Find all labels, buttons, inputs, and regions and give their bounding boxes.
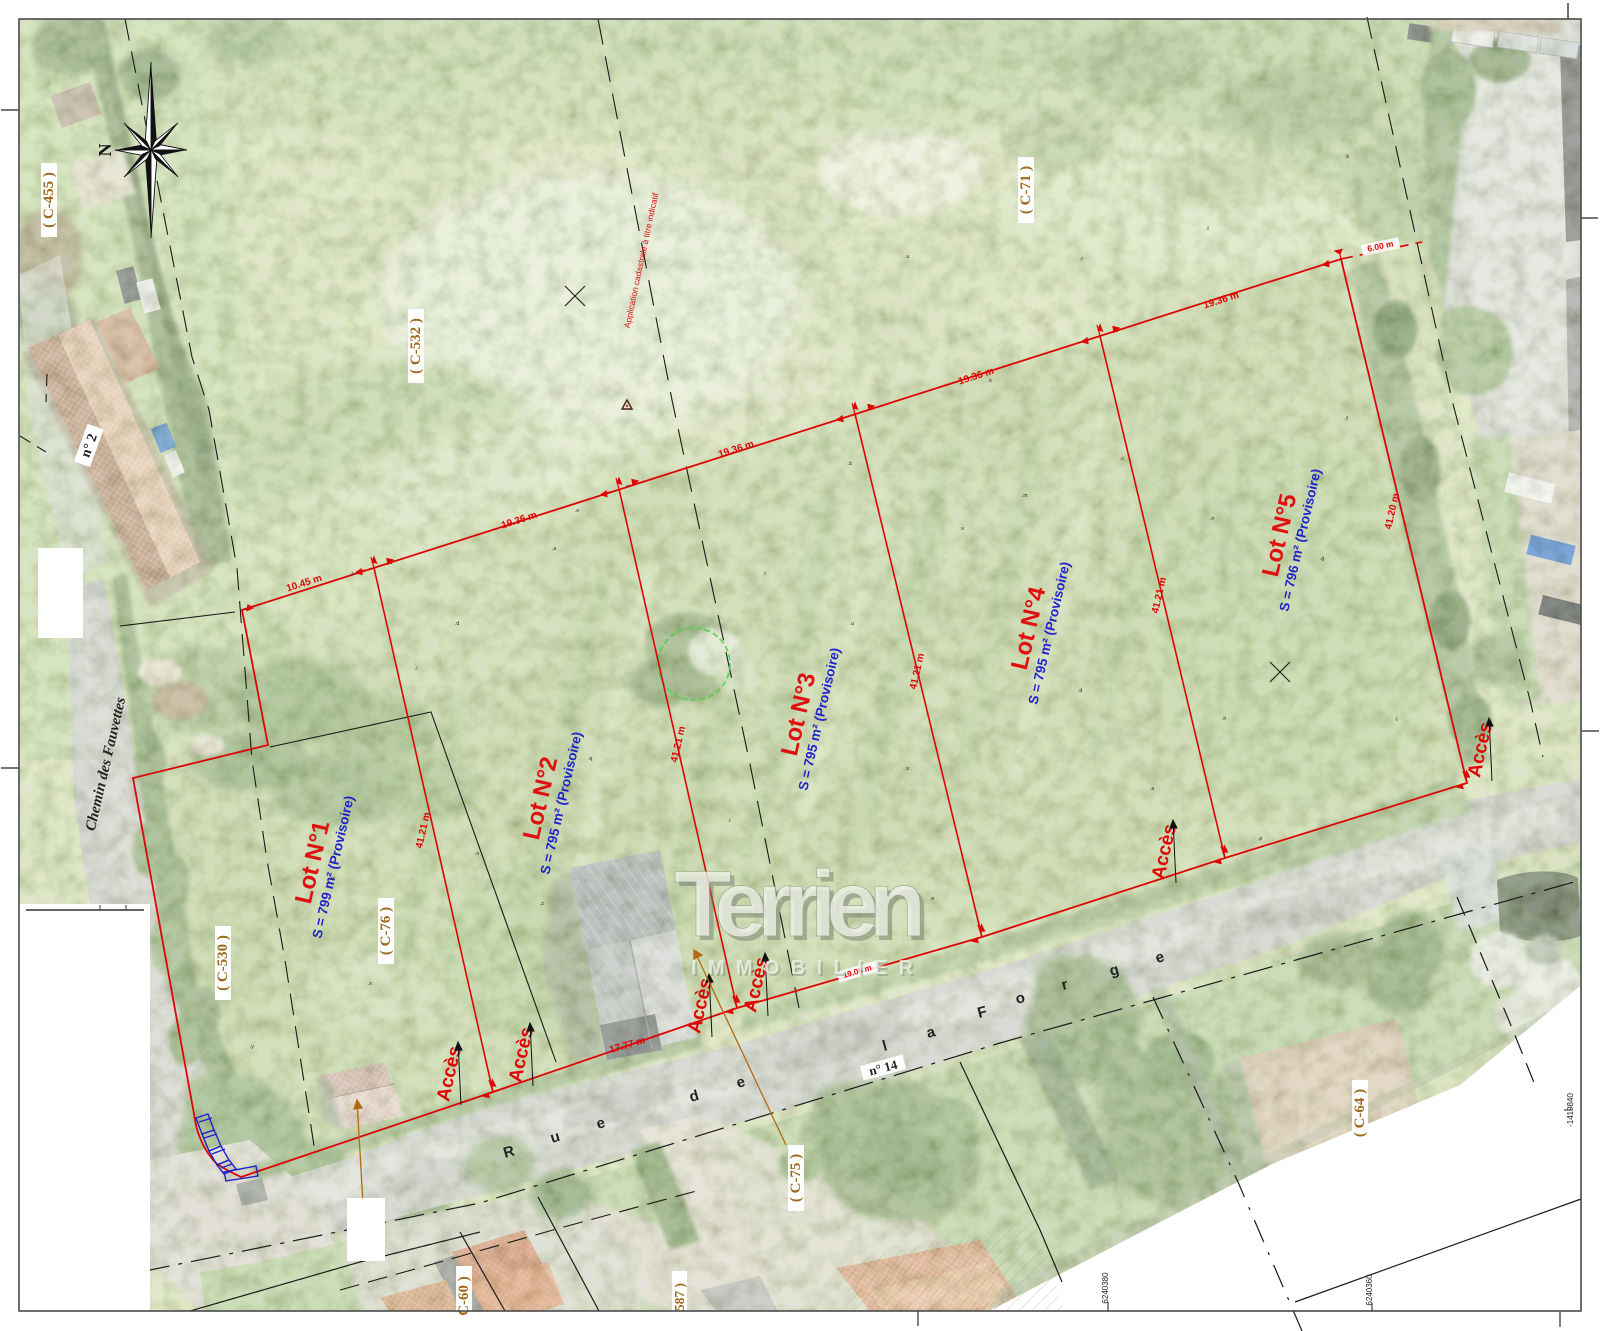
svg-text:.i: .i xyxy=(415,666,418,672)
svg-text:.r: .r xyxy=(1080,256,1083,262)
svg-text:.d: .d xyxy=(1078,688,1082,694)
svg-text:( C-71 ): ( C-71 ) xyxy=(1018,166,1034,214)
svg-text:.e: .e xyxy=(575,508,579,514)
svg-text:6240360: 6240360 xyxy=(1365,1274,1374,1306)
svg-text:.g: .g xyxy=(1320,556,1324,562)
svg-text:.c: .c xyxy=(1120,456,1124,462)
svg-text:.m: .m xyxy=(1022,493,1028,499)
svg-text:.a: .a xyxy=(1150,786,1154,792)
svg-text:.y: .y xyxy=(250,1044,254,1050)
svg-text:.n: .n xyxy=(1210,516,1214,522)
svg-text:.b: .b xyxy=(1345,154,1349,160)
svg-text:.o: .o xyxy=(475,851,479,857)
svg-text:( C-64 ): ( C-64 ) xyxy=(1352,1089,1368,1137)
svg-text:.b: .b xyxy=(848,461,852,467)
svg-text:.h: .h xyxy=(1222,716,1226,722)
svg-text:.l: .l xyxy=(728,818,731,824)
svg-text:IMMOBILIER: IMMOBILIER xyxy=(691,957,914,979)
svg-text:.v: .v xyxy=(960,526,964,532)
svg-text:.x: .x xyxy=(368,981,372,987)
svg-text:587 ): 587 ) xyxy=(672,1283,687,1311)
svg-text:.k: .k xyxy=(988,378,992,384)
svg-text:.p: .p xyxy=(1258,836,1262,842)
svg-text:.u: .u xyxy=(850,621,854,627)
svg-text:.z: .z xyxy=(540,901,544,907)
svg-text:.r: .r xyxy=(625,484,628,490)
svg-text:N: N xyxy=(95,144,115,157)
svg-text:C-60 ): C-60 ) xyxy=(456,1276,472,1316)
svg-text:.w: .w xyxy=(330,876,335,882)
svg-text:6240380: 6240380 xyxy=(1101,1272,1110,1304)
svg-text:.j: .j xyxy=(1395,716,1398,722)
svg-text:.s: .s xyxy=(905,766,909,772)
svg-text:.d: .d xyxy=(455,621,459,627)
svg-text:.u: .u xyxy=(905,254,909,260)
svg-text:.s: .s xyxy=(350,571,354,577)
svg-text:Terrien: Terrien xyxy=(674,851,926,956)
svg-text:.a: .a xyxy=(552,546,556,552)
svg-text:.q: .q xyxy=(588,756,592,762)
svg-text:( C-530 ): ( C-530 ) xyxy=(215,935,231,991)
svg-text:( C-455 ): ( C-455 ) xyxy=(41,172,57,228)
svg-text:( C-75 ): ( C-75 ) xyxy=(788,1154,804,1202)
svg-text:( C-532 ): ( C-532 ) xyxy=(408,318,424,374)
svg-text:( C-76 ): ( C-76 ) xyxy=(378,907,394,955)
svg-text:.e: .e xyxy=(930,896,934,902)
